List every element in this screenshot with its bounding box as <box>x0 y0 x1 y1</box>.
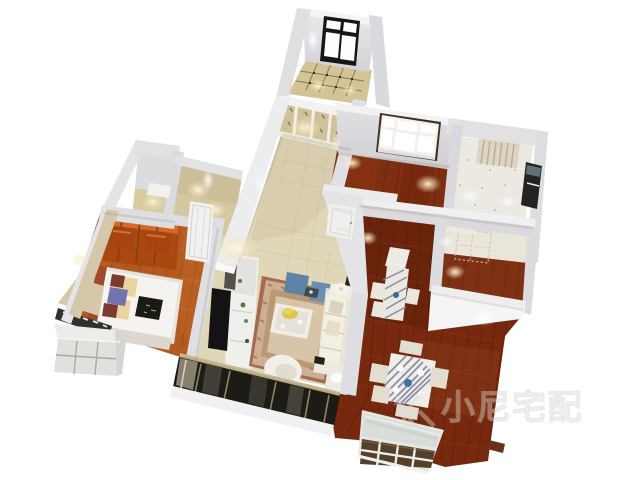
svg-text:小尼宅配: 小尼宅配 <box>441 388 583 427</box>
